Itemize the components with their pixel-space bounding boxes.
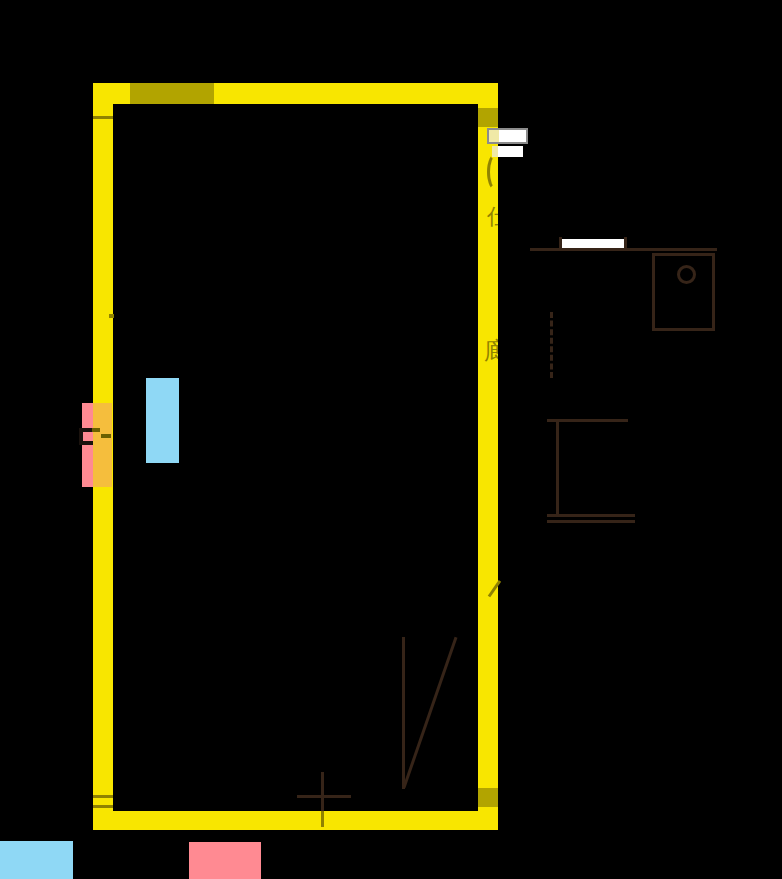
counter-outline-top <box>547 419 628 422</box>
entry-door-leaf <box>487 128 528 144</box>
left-wall-opening-mark <box>93 116 113 119</box>
room-wall-bottom-highlight <box>93 811 498 830</box>
sliding-window-rail-mark <box>101 434 111 438</box>
left-wall-opening-mark <box>93 795 113 798</box>
legend-swatch-pink <box>189 842 261 879</box>
cross-marker-vertical-on-wall <box>321 811 324 827</box>
right-wall-bottom-overlap <box>478 788 498 807</box>
right-wall-kanji-label-2: 廊 <box>484 338 498 366</box>
partition-dashed-line <box>550 312 553 378</box>
entry-door-swing-arc <box>487 153 505 191</box>
furniture-highlight-blue <box>146 378 179 463</box>
sliding-window-rail-mark <box>92 428 100 432</box>
right-wall-kanji-label-1: 仕 <box>487 205 498 231</box>
corridor-window-tick-right <box>624 237 627 249</box>
corridor-window-tick-left <box>559 237 562 249</box>
cross-marker-horizontal <box>297 795 351 798</box>
left-wall-tick-mark <box>109 314 114 318</box>
left-wall-opening-mark <box>93 805 113 808</box>
closet-door-line <box>402 637 405 789</box>
counter-outline-bottom-2 <box>547 520 635 523</box>
counter-outline-bottom-1 <box>547 514 635 517</box>
washing-machine-drain-circle <box>677 265 696 284</box>
balcony-window-overlap-orange <box>93 403 112 487</box>
cross-marker-vertical <box>321 772 324 811</box>
corridor-window-white <box>561 239 625 248</box>
counter-outline-left <box>556 419 559 515</box>
floor-plan-canvas: 仕 廊 <box>0 0 782 879</box>
legend-swatch-blue <box>0 841 73 879</box>
sliding-window-symbol <box>79 428 93 445</box>
balcony-window-highlight-pink <box>82 403 93 487</box>
right-wall-top-overlap <box>478 108 498 127</box>
closet-door-diagonal <box>403 637 458 788</box>
top-wall-window-overlap <box>130 83 214 104</box>
